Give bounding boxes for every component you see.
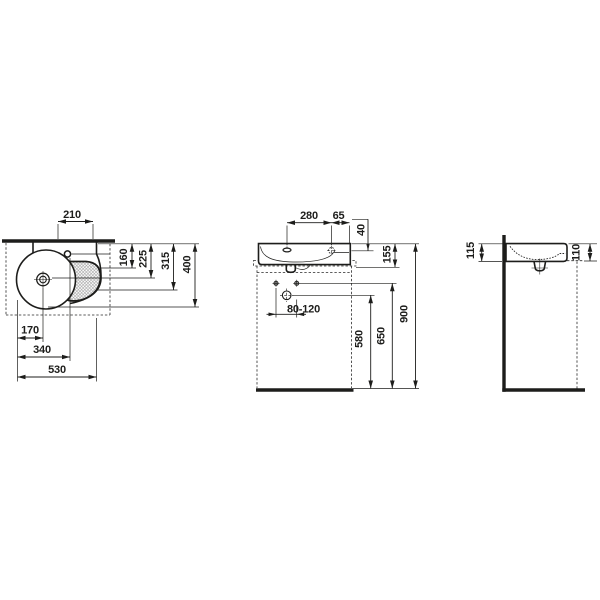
dim-115: 115 bbox=[465, 242, 504, 262]
side-view: 115 110 bbox=[465, 235, 597, 392]
dim-155: 155 bbox=[352, 244, 420, 267]
top-view: 210 160 225 315 400 170 340 53 bbox=[2, 209, 199, 382]
front-view: 280 65 40 155 80-120 580 bbox=[254, 210, 420, 390]
tap-hole-icon bbox=[283, 248, 291, 252]
fixing-hole-icon bbox=[293, 280, 300, 287]
front-view-rim-height-label: 900 bbox=[399, 305, 411, 323]
front-view-fixing-range-label: 80-120 bbox=[287, 304, 320, 316]
front-view-hole-spacing-label: 280 bbox=[300, 210, 318, 222]
dim-80-120: 80-120 bbox=[267, 288, 321, 318]
side-view-back-height-label: 115 bbox=[465, 242, 477, 259]
fixing-hole-icon bbox=[273, 280, 280, 287]
dim-280-65: 280 65 bbox=[287, 210, 350, 244]
front-view-outlet-height-label: 580 bbox=[354, 330, 366, 348]
top-view-basin-depth-label: 315 bbox=[160, 252, 172, 270]
dim-width-stack: 170 340 530 bbox=[18, 300, 97, 382]
basin-body bbox=[259, 244, 351, 265]
water-connection-icon bbox=[280, 289, 294, 303]
tap-hole-icon bbox=[64, 251, 70, 257]
top-view-total-depth-label: 400 bbox=[182, 256, 194, 274]
front-view-rim-to-hole-label: 40 bbox=[356, 224, 368, 236]
front-view-hole-to-edge-label: 65 bbox=[333, 210, 345, 222]
washbasin-dimension-drawing: 210 160 225 315 400 170 340 53 bbox=[0, 0, 600, 600]
dim-110: 110 bbox=[569, 244, 598, 261]
top-view-shelf-depth-label: 160 bbox=[118, 249, 130, 267]
dim-40: 40 bbox=[352, 219, 374, 251]
top-view-drain-depth-label: 225 bbox=[138, 250, 150, 268]
side-zone-dashed bbox=[567, 261, 584, 389]
side-view-front-height-label: 110 bbox=[571, 244, 583, 261]
dim-heights: 580 650 900 bbox=[292, 244, 416, 389]
front-view-fixing-height-label: 650 bbox=[376, 327, 388, 345]
technical-drawing-page: 210 160 225 315 400 170 340 53 bbox=[0, 0, 600, 600]
top-view-drain-offset-label: 170 bbox=[21, 325, 39, 337]
basin-profile bbox=[506, 244, 567, 262]
dim-210: 210 bbox=[58, 209, 93, 239]
top-view-total-width-label: 530 bbox=[48, 364, 66, 376]
front-view-body-height-label: 155 bbox=[382, 246, 394, 264]
top-view-tap-width-label: 210 bbox=[63, 209, 81, 221]
top-view-tap-offset-label: 340 bbox=[33, 344, 51, 356]
pedestal-zone-dashed bbox=[257, 266, 352, 388]
